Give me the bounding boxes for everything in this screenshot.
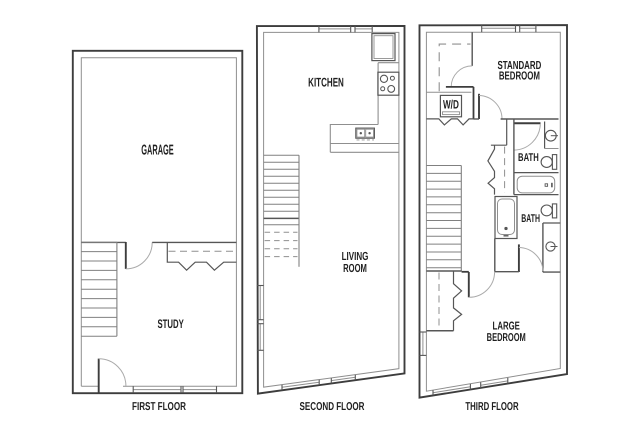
svg-text:BATH: BATH [521, 213, 540, 225]
svg-text:FIRST FLOOR: FIRST FLOOR [132, 401, 186, 413]
svg-text:W/D: W/D [443, 97, 459, 111]
svg-text:STUDY: STUDY [157, 317, 184, 331]
svg-text:LARGE: LARGE [493, 321, 521, 333]
svg-text:BEDROOM: BEDROOM [487, 332, 526, 344]
svg-text:SECOND FLOOR: SECOND FLOOR [300, 401, 365, 413]
svg-text:BATH: BATH [518, 152, 539, 164]
svg-text:THIRD FLOOR: THIRD FLOOR [465, 401, 518, 413]
svg-text:ROOM: ROOM [343, 262, 367, 275]
svg-text:BEDROOM: BEDROOM [499, 69, 540, 82]
svg-text:KITCHEN: KITCHEN [308, 75, 344, 89]
svg-text:GARAGE: GARAGE [141, 142, 174, 158]
